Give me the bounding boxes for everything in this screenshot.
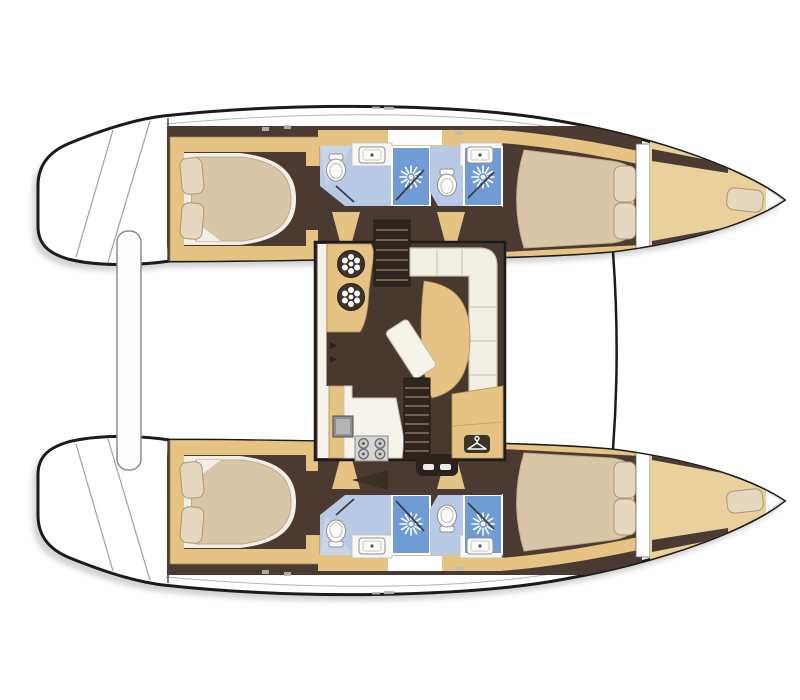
wardrobe-locker: [452, 386, 503, 458]
step-tread-mark: [440, 464, 451, 470]
catamaran-floorplan: [0, 0, 800, 700]
stove-burner-icon: [359, 439, 369, 449]
step-tread-mark: [423, 464, 434, 470]
pillow: [614, 166, 636, 202]
vent-dial-icon: [338, 251, 365, 278]
vent-dial-icon: [338, 284, 365, 311]
pillow: [179, 157, 204, 195]
stairs-upper-hull: [374, 220, 410, 286]
saloon: [315, 220, 505, 490]
pillow: [179, 202, 204, 240]
toilet-icon: [438, 169, 457, 196]
aft-cabin: [170, 137, 322, 261]
stove-burner-icon: [375, 449, 385, 459]
washbasin-icon: [467, 147, 493, 163]
catamaran-floorplan-page: [0, 0, 800, 700]
hull-window: [388, 130, 442, 145]
stove-burner-icon: [359, 449, 369, 459]
stairs-well: [404, 378, 430, 460]
pillow: [726, 187, 764, 213]
pillow: [614, 203, 636, 239]
forward-crossbeam: [613, 252, 617, 449]
aft-cabin-bed: [192, 157, 292, 241]
bow-bulkhead: [636, 144, 650, 260]
hanger-badge: [464, 435, 490, 453]
aft-bathroom: [320, 143, 430, 206]
galley-sink-basin: [336, 419, 350, 434]
toilet-icon: [327, 154, 346, 181]
galley-side-panel: [322, 386, 329, 458]
washbasin-icon: [359, 147, 385, 163]
stove-burner-icon: [375, 439, 385, 449]
forward-bathroom: [430, 143, 502, 206]
aft-crossbeam-bar: [117, 231, 141, 470]
stove: [355, 436, 388, 461]
